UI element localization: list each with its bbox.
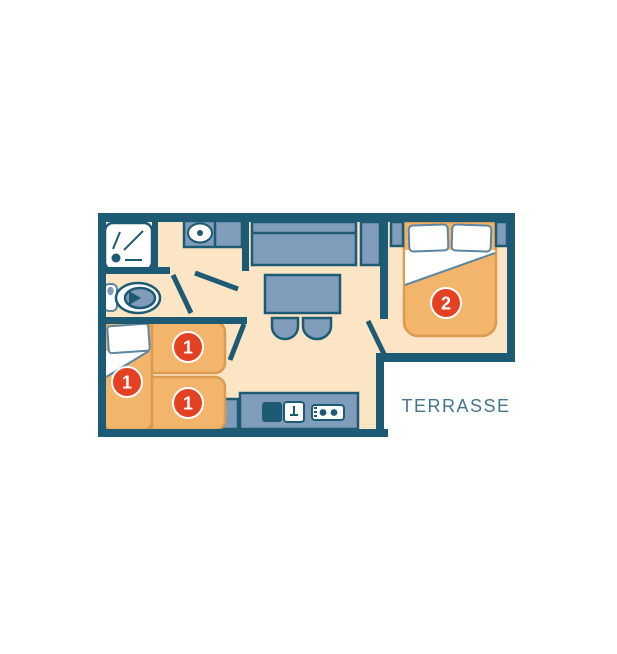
badge-double: 2 [431, 288, 461, 318]
shower-icon [105, 223, 152, 270]
floorplan-svg: 1 1 1 2 TERRASSE [0, 0, 617, 654]
nightstand-left [391, 222, 403, 246]
sofa-icon [252, 222, 380, 265]
svg-text:1: 1 [183, 338, 193, 358]
stove-icon [312, 405, 344, 420]
fridge-icon [262, 402, 282, 422]
nightstand-right [496, 222, 507, 246]
bed-double [391, 222, 507, 336]
table-icon [265, 275, 340, 313]
floorplan-canvas: 1 1 1 2 TERRASSE [0, 0, 617, 654]
svg-text:1: 1 [183, 394, 193, 414]
terrasse-label: TERRASSE [401, 396, 510, 416]
kitchen-counter [219, 393, 358, 429]
toilet-icon [104, 283, 160, 313]
badge-single-top: 1 [173, 332, 203, 362]
badge-single-left: 1 [112, 367, 142, 397]
svg-text:2: 2 [441, 294, 451, 314]
badge-single-bottom: 1 [173, 388, 203, 418]
washbasin-icon [184, 221, 242, 247]
svg-text:1: 1 [122, 373, 132, 393]
kitchen-sink-icon [284, 402, 304, 422]
